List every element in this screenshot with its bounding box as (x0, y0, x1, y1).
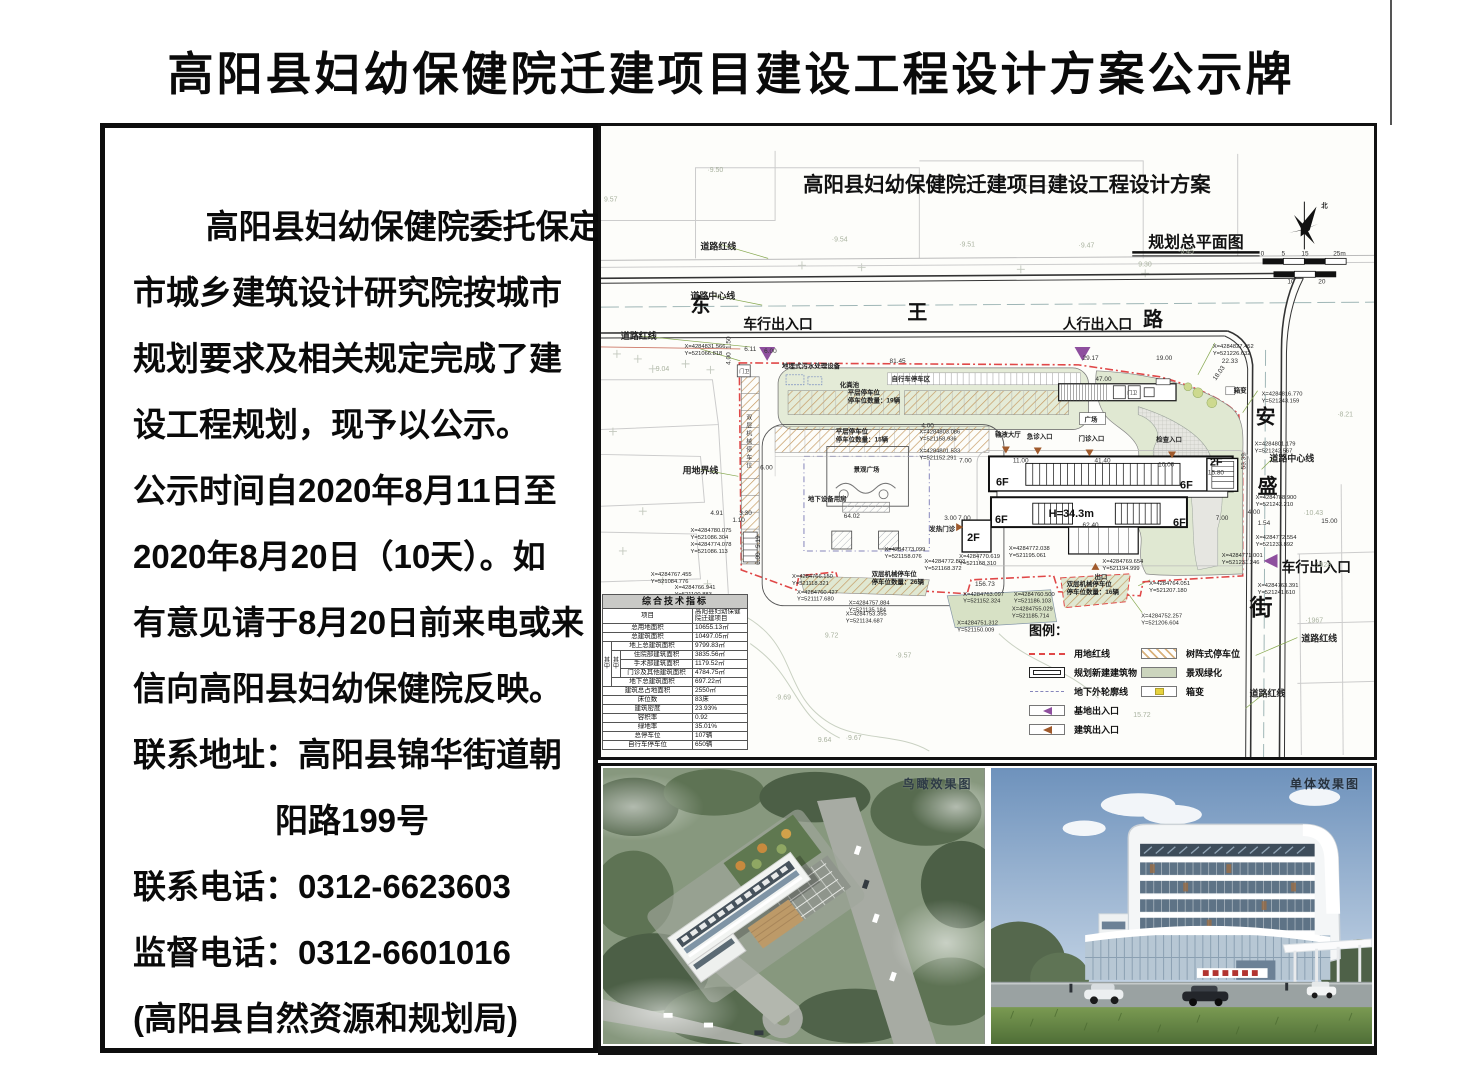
table-cell: 总用地面积 (603, 624, 693, 633)
plan-label: Y=521134.687 (846, 619, 883, 625)
plan-label: X=4284752.257 (1141, 614, 1182, 620)
table-cell: 项目 (603, 609, 693, 624)
notice-line: 设工程规划，现予以公示。 (133, 392, 571, 458)
plan-label: X=4284757.884 (849, 601, 891, 607)
plan-label: 7.00 (959, 457, 972, 464)
notice-line: 2020年8月20日（10天）。如 (133, 524, 571, 590)
plan-label: ·9.45 (1178, 248, 1194, 255)
road-name-lu: 路 (1143, 307, 1164, 331)
street-rendering-image (991, 768, 1373, 1044)
table-cell: 床位数 (603, 696, 693, 705)
plan-label: 平层停车位 (848, 388, 881, 397)
plan-label: X=4284770.619 (959, 554, 1000, 560)
plan-label: 地下设备用房 (808, 494, 847, 503)
legend-left-column: 用地红线 规划新建建筑物 地下外轮廓线 基地出入口 建筑出入口 (1029, 644, 1137, 739)
legend-item-label: 用地红线 (1074, 647, 1110, 660)
plan-label: X=4284755.029 (1012, 607, 1053, 613)
aerial-rendering-image (603, 768, 985, 1044)
plan-label: X=4284827.452 (1213, 344, 1254, 350)
plan-label: X=4284773.099 (885, 547, 926, 553)
notice-line: 公示时间自2020年8月11日至 (133, 458, 571, 524)
plan-label: 门卫 (739, 368, 749, 375)
plan-label: Y=521158.936 (919, 437, 956, 443)
plan-label: 25m (1333, 250, 1346, 257)
plan-label: 156.73 (975, 581, 995, 588)
plan-label: 双层机械停车位 (872, 569, 918, 578)
plan-label: 械 (746, 437, 752, 445)
plan-label: 6F (996, 476, 1009, 488)
plan-label: 箱变 (1234, 386, 1247, 395)
plan-label: 7.00 (958, 515, 971, 522)
plan-label: ·9.50 (707, 167, 723, 174)
underground-outline-swatch-icon (1029, 686, 1065, 697)
plan-panel: 高阳县妇幼保健院迁建项目建设工程设计方案 规划总平面图 东王路安盛街北道路红线道… (598, 123, 1377, 1055)
legend-right-column: 树阵式停车位 景观绿化 箱变 (1141, 644, 1240, 701)
plan-subtitle: 规划总平面图 (1148, 232, 1243, 251)
plan-label: 门诊入口 (1079, 434, 1105, 443)
plan-label: X=4284760.500 (1014, 592, 1055, 598)
plan-label: 4.00 (725, 352, 732, 365)
legend-item-label: 基地出入口 (1074, 704, 1119, 717)
plan-label: X=4284801.179 (1255, 441, 1296, 447)
table-cell: 建筑总占地面积 (603, 687, 693, 696)
plan-label: ·10.43 (1303, 510, 1323, 517)
plan-label: 15 (1301, 250, 1309, 257)
legend-item-label: 规划新建建筑物 (1074, 666, 1137, 679)
tree-parking-swatch-icon (1141, 648, 1177, 659)
legend-item-label: 景观绿化 (1186, 666, 1222, 679)
plan-label: 29.17 (1083, 355, 1100, 362)
plan-label: 15.00 (1321, 518, 1338, 525)
notice-contact-address: 联系地址：高阳县锦华街道朝 (133, 722, 571, 788)
legend-item-label: 建筑出入口 (1074, 723, 1119, 736)
notice-line: 规划要求及相关规定完成了建 (133, 326, 571, 392)
plan-label: 广场 (1084, 415, 1097, 424)
plan-label: X=4284772.038 (1009, 546, 1050, 552)
plan-label: 3.30 (739, 510, 752, 517)
plan-label: 4.00 (921, 423, 934, 430)
plan-label: 1.54 (1258, 520, 1271, 527)
plan-label: Y=521186.103 (1014, 599, 1051, 605)
plan-label: 9.72 (825, 633, 839, 640)
table-cell: 23.93% (693, 705, 748, 714)
plan-label: 道路红线 (1250, 687, 1286, 698)
plan-label: Y=521207.180 (1149, 588, 1187, 594)
plan-label: Y=521086.304 (691, 535, 729, 541)
plan-label: 53.39 (1241, 453, 1248, 470)
plan-label: 检查入口 (1156, 434, 1182, 443)
plan-label: ·9.57 (895, 652, 911, 659)
table-cell: 1179.52㎡ (693, 660, 748, 669)
plan-label: X=4284763.391 (1258, 583, 1299, 589)
legend-item: 用地红线 (1029, 644, 1137, 663)
table-cell: 自行车停车位 (603, 741, 693, 750)
plan-label: X=4284801.533 (919, 448, 960, 454)
plan-label: Y=521117.680 (797, 597, 834, 603)
north-label: 北 (1321, 201, 1328, 210)
plan-label: 道路红线 (700, 240, 736, 251)
table-cell: 地下总建筑面积 (612, 678, 693, 687)
page-title: 高阳县妇幼保健院迁建项目建设工程设计方案公示牌 (0, 38, 1462, 104)
plan-label: 2F (1210, 456, 1223, 468)
table-cell: 3835.56㎡ (693, 651, 748, 660)
plan-label: 2F (967, 532, 980, 544)
plan-label: X=4284751.312 (957, 621, 998, 627)
plan-label: ·1928 (1313, 562, 1331, 569)
plan-label: 6F (1173, 517, 1186, 529)
plan-label: 6.11 (744, 346, 756, 353)
legend-item: 树阵式停车位 (1141, 644, 1240, 663)
plan-label: 81.45 (890, 358, 907, 365)
plan-label: X=4284803.086 (919, 430, 960, 436)
street-rendering-label: 单体效果图 (1290, 775, 1360, 792)
plan-label: 5 (1281, 250, 1285, 257)
plan-label: Y=521241.610 (1258, 590, 1296, 596)
legend-title: 图例： (1029, 620, 1359, 639)
plan-label: 22.33 (1222, 358, 1239, 365)
table-cell: 650辆 (693, 741, 748, 750)
legend-item-label: 地下外轮廓线 (1074, 685, 1128, 698)
plan-label: X=4284766.150 (792, 574, 833, 580)
plan-label: 停车位数量：19辆 (848, 396, 901, 405)
plan-label: 5.19 (755, 535, 762, 548)
plan-label: 层 (746, 423, 752, 430)
plan-label: 6.00 (760, 464, 773, 471)
legend-item: 基地出入口 (1029, 701, 1137, 720)
legend-item: 景观绿化 (1141, 663, 1240, 682)
plan-label: Y=521185.714 (1012, 614, 1050, 620)
box-transformer-swatch-icon (1141, 686, 1177, 697)
plan-label: 41.40 (1094, 457, 1111, 464)
table-cell: 绿地率 (603, 723, 693, 732)
plan-label: 6F (995, 514, 1008, 526)
plan-label: 10 (1287, 278, 1295, 285)
notice-line: 市城乡建筑设计研究院按城市 (133, 260, 571, 326)
greenery-swatch-icon (1141, 667, 1177, 678)
plan-label: 停 (746, 445, 752, 453)
plan-label: X=4284772.803 (924, 559, 965, 565)
table-cell: 总建筑面积 (603, 633, 693, 642)
plan-label: 1.50 (725, 336, 732, 349)
plan-label: Y=521195.061 (1009, 553, 1046, 559)
plan-label: 停车位数量：16辆 (1067, 587, 1120, 596)
plan-label: 9.57 (604, 197, 618, 204)
plan-label: 机 (746, 430, 752, 438)
plan-label: X=4284767.455 (651, 572, 692, 578)
plan-label: 道路红线 (621, 330, 657, 341)
north-greenery-parking (778, 368, 1088, 430)
table-cell: 高阳县妇幼保健院迁建项目 (693, 609, 748, 624)
table-cell: 10497.05㎡ (693, 633, 748, 642)
scan-artifact-line (1390, 0, 1392, 125)
site-plan-area: 高阳县妇幼保健院迁建项目建设工程设计方案 规划总平面图 东王路安盛街北道路红线道… (598, 123, 1377, 760)
vehicle-entrance-label: 车行出入口 (743, 316, 813, 332)
renderings-row: 鸟瞰效果图 (598, 763, 1377, 1055)
table-cell: 手术部建筑面积 (621, 660, 693, 669)
plan-label: ·9.67 (846, 735, 862, 742)
aerial-rendering-label: 鸟瞰效果图 (902, 775, 972, 792)
notice-supervise-phone: 监督电话：0312-6601016 (133, 920, 571, 986)
plan-label: 62.40 (1083, 522, 1100, 529)
plan-label: 0 (1261, 250, 1265, 257)
plan-label: Y=521168.372 (924, 566, 961, 572)
plan-title: 高阳县妇幼保健院迁建项目建设工程设计方案 (803, 173, 1211, 197)
table-group-label: 其中 (612, 651, 621, 678)
plan-label: 4.00 (1248, 509, 1261, 516)
table-cell: 0.92 (693, 714, 748, 723)
plan-label: 3.00 (944, 515, 957, 522)
table-cell: 107辆 (693, 732, 748, 741)
table-cell: 2550㎡ (693, 687, 748, 696)
plan-label: 6.00 (755, 552, 762, 565)
plan-label: 地埋式污水处理设备 (782, 361, 841, 370)
street-rendering: 单体效果图 (991, 768, 1373, 1044)
plan-label: Y=521243.159 (1262, 399, 1300, 405)
building-entrance-swatch-icon (1029, 724, 1065, 735)
table-cell: 总停车位 (603, 732, 693, 741)
plan-label: 9.04 (656, 366, 670, 373)
plan-label: Y=521194.999 (1102, 566, 1139, 572)
plan-label: 停车位数量：15辆 (836, 434, 889, 443)
table-cell: 4784.75㎡ (693, 669, 748, 678)
plan-label: ·9.51 (959, 241, 975, 248)
notice-contact-phone: 联系电话：0312-6623603 (133, 854, 571, 920)
plan-label: 15.80 (1208, 469, 1225, 476)
plan-label: 用地界线 (682, 464, 719, 475)
plan-label: 双 (746, 415, 752, 422)
table-cell: 35.01% (693, 723, 748, 732)
plan-label: X=4284764.051 (1149, 581, 1190, 587)
site-entrance-swatch-icon (1029, 705, 1065, 716)
plan-label: H=34.3m (1049, 508, 1095, 520)
plan-label: Y=521242.567 (1255, 448, 1293, 454)
legend-item: 建筑出入口 (1029, 720, 1137, 739)
notice-board: 高阳县妇幼保健院迁建项目建设工程设计方案公示牌 高阳县妇幼保健院委托保定 市城乡… (0, 0, 1462, 1080)
plan-label: X=4284771.001 (1222, 553, 1263, 559)
notice-line: 高阳县妇幼保健院委托保定 (133, 194, 571, 260)
plan-label: X=4284780.075 (691, 528, 732, 534)
plan-label: X=4284816.770 (1262, 392, 1303, 398)
plan-label: 门卫 (1127, 390, 1137, 397)
legend-item-label: 树阵式停车位 (1186, 647, 1240, 660)
legend-item: 规划新建建筑物 (1029, 663, 1137, 682)
plan-label: Y=521150.009 (957, 628, 994, 634)
plan-label: 7.00 (1216, 515, 1229, 522)
table-cell: 门诊及其他建筑面积 (621, 669, 693, 678)
table-title: 综合技术指标 (603, 595, 748, 609)
notice-agency: (高阳县自然资源和规划局) (133, 986, 571, 1052)
plan-label: 1.10 (732, 517, 745, 524)
plan-label: Y=521152.324 (963, 599, 1001, 605)
plan-label: 9.64 (818, 737, 832, 744)
table-cell: 697.22㎡ (693, 678, 748, 687)
notice-line: 信向高阳县妇幼保健院反映。 (133, 656, 571, 722)
table-cell: 容积率 (603, 714, 693, 723)
plan-label: Y=521158.076 (885, 554, 922, 560)
plan-label: 位 (746, 461, 752, 469)
plan-label: 6.00 (764, 348, 777, 355)
plan-label: X=4284788.900 (1256, 495, 1297, 501)
legend-item-label: 箱变 (1186, 685, 1204, 698)
plan-label: ·9.54 (832, 236, 848, 243)
plan-label: 景观广场 (854, 464, 880, 473)
plan-label: X=4284831.566 (685, 344, 726, 350)
plan-label: X=4284772.554 (1256, 535, 1298, 541)
tech-indicator-table: 综合技术指标 项目高阳县妇幼保健院迁建项目 总用地面积10655.13㎡ 总建筑… (602, 594, 748, 750)
table-cell: 83床 (693, 696, 748, 705)
table-cell: 建筑密度 (603, 705, 693, 714)
plan-label: 出口 (1094, 572, 1107, 581)
plan-label: 输液大厅 (995, 430, 1021, 439)
plan-label: 平层停车位 (836, 427, 869, 436)
plan-label: Y=521226.632 (1213, 351, 1251, 357)
plan-label: 化粪池 (840, 380, 860, 389)
plan-label: Y=521086.113 (691, 549, 728, 555)
grass-foreground (991, 1007, 1373, 1044)
plan-label: 6F (1180, 479, 1193, 491)
plan-label: 发热门诊 (928, 524, 955, 533)
table-group-label: 其中 (603, 642, 612, 687)
plan-label: 11.00 (1013, 457, 1029, 464)
plan-label: 车 (746, 453, 752, 461)
plan-label: 4.91 (710, 510, 723, 517)
plan-label: Y=521233.892 (1256, 542, 1294, 548)
plan-label: X=4284774.078 (691, 542, 732, 548)
plan-label: Y=521066.818 (685, 351, 723, 357)
table-cell: 地上总建筑面积 (612, 642, 693, 651)
aerial-rendering: 鸟瞰效果图 (603, 768, 985, 1044)
plan-label: 9.30 (1138, 261, 1152, 268)
plan-label: 10.00 (1158, 461, 1175, 468)
table-cell: 9799.83㎡ (693, 642, 748, 651)
plan-label: ·9.69 (775, 694, 791, 701)
legend: 图例： 用地红线 规划新建建筑物 地下外轮廓线 基地出入口 建筑出入口 树阵式停… (1029, 620, 1359, 639)
plan-label: X=4284753.355 (846, 612, 887, 618)
plan-label: X=4284763.097 (963, 592, 1004, 598)
plan-label: Y=521118.321 (792, 581, 829, 587)
plan-label: X=4284769.654 (1102, 559, 1144, 565)
pedestrian-entrance-label: 人行出入口 (1063, 316, 1133, 332)
plan-label: 19.00 (1156, 355, 1173, 362)
plan-label: Y=521231.246 (1222, 560, 1260, 566)
table-cell: 10655.13㎡ (693, 624, 748, 633)
plan-label: X=4284760.427 (797, 590, 838, 596)
plan-label: 64.02 (844, 513, 861, 520)
road-name-wang: 王 (907, 302, 927, 324)
plan-label: ·9.47 (1079, 242, 1095, 249)
table-cell: 住院部建筑面积 (621, 651, 693, 660)
plan-label: 47.00 (1095, 376, 1112, 383)
plan-label: ·8.21 (1337, 412, 1353, 419)
plan-label: 20 (1318, 278, 1326, 285)
redline-swatch-icon (1029, 648, 1065, 659)
legend-item: 箱变 (1141, 682, 1240, 701)
plan-label: 道路中心线 (691, 290, 736, 301)
notice-line: 有意见请于8月20日前来电或来 (133, 590, 571, 656)
notice-text-box: 高阳县妇幼保健院委托保定 市城乡建筑设计研究院按城市 规划要求及相关规定完成了建… (100, 123, 598, 1053)
legend-item: 地下外轮廓线 (1029, 682, 1137, 701)
new-building-swatch-icon (1029, 667, 1065, 678)
plan-label: Y=521152.291 (919, 455, 956, 461)
plan-label: X=4284766.941 (675, 585, 716, 591)
road-name-jie: 街 (1249, 595, 1273, 621)
street-building-group (1085, 824, 1371, 985)
notice-contact-address-2: 阳路199号 (133, 788, 571, 854)
plan-label: 急诊入口 (1027, 432, 1053, 441)
plan-label: Y=521242.210 (1256, 502, 1294, 508)
road-name-an: 安 (1256, 405, 1276, 429)
plan-label: 自行车停车区 (891, 374, 930, 383)
plan-label: 停车位数量：26辆 (872, 577, 925, 586)
